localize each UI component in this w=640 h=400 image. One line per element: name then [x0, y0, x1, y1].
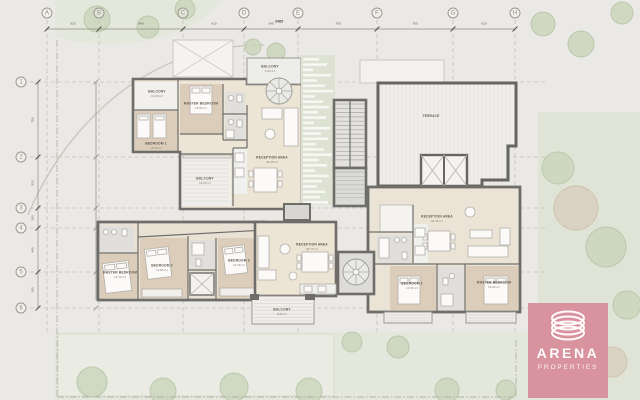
dim-left-2: 200 — [32, 215, 35, 220]
tree-icon — [342, 332, 362, 352]
tree-icon — [77, 367, 107, 397]
room-label-reception-b: RECEPTION AREA30.10 m² — [421, 215, 453, 223]
room-label-balcony-a2: BALCONY18.60 m² — [196, 177, 213, 185]
grid-row-5: 5 — [16, 267, 27, 278]
tree-icon — [220, 373, 248, 400]
dim-top-0: 520 — [70, 23, 75, 26]
room-label-bedroom-b1: BEDROOM 112.60 m² — [401, 282, 422, 290]
room-label-balcony-c: BALCONY9.60 m² — [273, 308, 290, 316]
pergola-louvers — [301, 55, 335, 205]
grid-row-3: 3 — [16, 203, 27, 214]
tree-icon — [554, 186, 598, 230]
tree-icon — [542, 152, 574, 184]
dim-top-5: 760 — [412, 23, 417, 26]
room-label-master-bedroom-b: MASTER BEDROOM14.90 m² — [477, 281, 511, 289]
dim-left-0: 750 — [32, 117, 35, 122]
dim-top-total: 3485 — [275, 20, 283, 24]
grid-row-1: 1 — [16, 77, 27, 88]
tree-icon — [387, 336, 409, 358]
grid-row-2: 2 — [16, 152, 27, 163]
logo-sub-text: PROPERTIES — [538, 364, 599, 371]
room-label-reception-c: RECEPTION AREA26.70 m² — [296, 243, 328, 251]
tree-icon — [137, 16, 159, 38]
room-label-master-bedroom-a: MASTER BEDROOM15.80 m² — [184, 102, 218, 110]
tree-icon — [586, 227, 626, 267]
dim-top-3: 540 — [268, 23, 273, 26]
grid-column-A: A — [42, 8, 53, 19]
unit-b — [368, 187, 520, 323]
grid-column-D: D — [239, 8, 250, 19]
tree-icon — [245, 39, 261, 55]
tree-icon — [613, 291, 640, 319]
logo-brand-text: ARENA — [537, 345, 600, 361]
room-label-reception-a: RECEPTION AREA28.40 m² — [256, 156, 288, 164]
room-label-bedroom-a1: BEDROOM 113.20 m² — [145, 142, 166, 150]
grid-column-F: F — [372, 8, 383, 19]
dim-top-4: 790 — [335, 23, 340, 26]
spiral-stair-block — [338, 252, 374, 294]
central-staircase — [334, 100, 366, 206]
grid-column-C: C — [178, 8, 189, 19]
grid-column-G: G — [448, 8, 459, 19]
room-label-terrace: TERRACE — [422, 115, 439, 119]
room-label-bedroom-c3: BEDROOM 312.40 m² — [228, 259, 249, 267]
logo-rings-icon — [545, 308, 591, 344]
tree-icon — [531, 12, 555, 36]
service-shaft — [284, 204, 310, 220]
grid-row-6: 6 — [16, 303, 27, 314]
arena-properties-logo: ARENA PROPERTIES — [528, 303, 608, 398]
dim-top-1: 840 — [138, 23, 143, 26]
grid-row-4: 4 — [16, 223, 27, 234]
dim-left-1: 510 — [32, 180, 35, 185]
dim-top-6: 620 — [481, 23, 486, 26]
grid-column-H: H — [510, 8, 521, 19]
tree-icon — [611, 2, 633, 24]
dim-left-3: 440 — [32, 247, 35, 252]
tree-icon — [568, 31, 594, 57]
dim-top-2: 610 — [211, 23, 216, 26]
grid-column-E: E — [293, 8, 304, 19]
floor-plan-sheet: ABCDEFGH12345652084061054079076062034857… — [0, 0, 640, 400]
grid-column-B: B — [94, 8, 105, 19]
canopy-skylight — [173, 40, 233, 77]
room-label-master-bedroom-c: MASTER BEDROOM14.20 m² — [103, 271, 137, 279]
room-label-balcony-spiral: BALCONY8.20 m² — [261, 65, 278, 73]
room-label-balcony-tl: BALCONY10.40 m² — [148, 90, 165, 98]
reception-c-block — [255, 222, 336, 296]
dim-left-4: 360 — [32, 287, 35, 292]
room-label-bedroom-c2: BEDROOM 212.80 m² — [151, 264, 172, 272]
